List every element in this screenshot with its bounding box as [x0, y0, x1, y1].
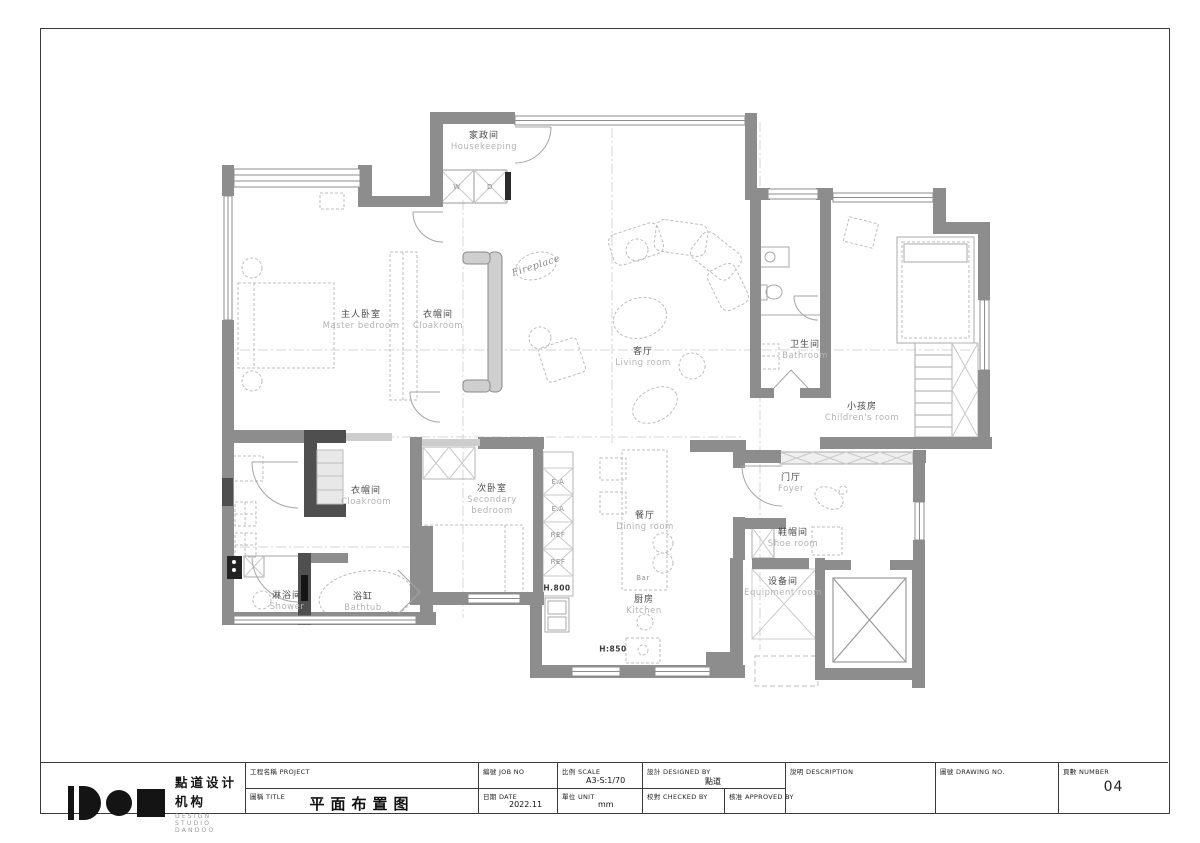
room-label-master-bedroom: 主人卧室 Master bedroom: [323, 310, 400, 332]
drawing-no-cell: 圖號 DRAWING NO.: [935, 763, 1058, 813]
walls-dark: [222, 172, 511, 625]
number-cell: 頁數 NUMBER 04: [1058, 763, 1168, 813]
studio-logo: 點道设计机构 DESIGN STUDIO DANDOO: [68, 772, 245, 834]
unit-row: 單位 UNIT mm: [558, 788, 642, 814]
ref-annotation-1: REF: [551, 531, 566, 539]
ea-annotation-1: E.A: [552, 478, 565, 486]
room-label-living-room: 客厅 Living room: [615, 347, 670, 369]
island-height-annotation: H:850: [599, 645, 626, 654]
drawing-no-label: 圖號 DRAWING NO.: [940, 766, 1005, 776]
room-label-secondary-bedroom: 次卧室 Secondary bedroom: [455, 484, 529, 517]
scale-label: 比例 SCALE: [562, 766, 600, 776]
room-label-shower: 淋浴间 Shower: [270, 591, 305, 613]
title-row: 圖稱 TITLE 平面布置图: [246, 788, 478, 814]
unit-value: mm: [598, 800, 614, 809]
bar-annotation: Bar: [636, 574, 649, 582]
drawing-title: 平面布置图: [246, 793, 478, 814]
studio-name-en: DESIGN STUDIO DANDOO: [175, 813, 245, 834]
logo-text: 點道设计机构 DESIGN STUDIO DANDOO: [175, 772, 245, 834]
windows: [224, 116, 989, 676]
room-label-childrens-room: 小孩房 Children's room: [825, 402, 899, 424]
design-check-cell: 設計 DESIGNED BY 點道 校對 CHECKED BY 核准 APPRO…: [642, 763, 785, 813]
ref-annotation-2: REF: [551, 558, 566, 566]
job-no-label: 編號 JOB NO: [483, 766, 524, 776]
logo-d-shape: [79, 786, 101, 820]
elevator-shaft: [833, 578, 906, 662]
studio-name-cn: 點道设计机构: [175, 772, 245, 810]
logo-dot-shape: [106, 790, 132, 816]
title-block: 點道设计机构 DESIGN STUDIO DANDOO 工程名稱 PROJECT…: [40, 762, 1168, 813]
counter-height-annotation: H.800: [543, 584, 570, 593]
room-label-housekeeping: 家政间 Housekeeping: [451, 131, 517, 153]
room-label-foyer: 门厅 Foyer: [778, 473, 804, 495]
drawing-sheet: 家政间 Housekeeping 主人卧室 Master bedroom 衣帽间…: [0, 0, 1200, 843]
room-label-kitchen: 厨房 Kitchen: [626, 595, 661, 617]
designed-by-label: 設計 DESIGNED BY: [647, 766, 711, 776]
scale-value: A3-S:1/70: [586, 776, 625, 785]
logo-square-shape: [137, 789, 165, 817]
description-cell: 說明 DESCRIPTION: [785, 763, 935, 813]
room-label-cloakroom-master: 衣帽间 Cloakroom: [413, 310, 463, 332]
sheet-number-value: 04: [1059, 779, 1168, 795]
logo-mark-icon: [68, 786, 165, 820]
description-label: 說明 DESCRIPTION: [790, 766, 853, 776]
room-label-equipment-room: 设备间 Equipment room: [744, 577, 822, 599]
jobno-date-cell: 編號 JOB NO 日期 DATE 2022.11: [478, 763, 557, 813]
room-label-bathtub: 浴缸 Bathtub: [344, 592, 381, 614]
dryer-annotation: D: [487, 183, 493, 191]
approved-by-cell: 核准 APPROVED BY: [724, 789, 786, 814]
room-label-cloakroom-second: 衣帽间 Cloakroom: [341, 486, 391, 508]
number-label: 頁數 NUMBER: [1063, 766, 1109, 776]
logo-bar-shape: [68, 786, 74, 820]
ea-annotation-2: E.A: [552, 505, 565, 513]
room-label-bathroom: 卫生间 Bathroom: [782, 340, 828, 362]
room-label-dining-room: 餐厅 Dining room: [616, 511, 674, 533]
scale-unit-cell: 比例 SCALE A3-S:1/70 單位 UNIT mm: [557, 763, 642, 813]
unit-label: 單位 UNIT: [562, 791, 595, 801]
partition-shelves: [317, 252, 502, 504]
checked-by-label: 校對 CHECKED BY: [647, 791, 708, 801]
checked-by-cell: 校對 CHECKED BY: [643, 789, 724, 814]
date-row: 日期 DATE 2022.11: [479, 788, 557, 814]
date-value: 2022.11: [509, 800, 542, 809]
floor-plan: [0, 0, 1200, 843]
washer-annotation: W: [453, 183, 460, 191]
room-label-shoe-room: 鞋帽间 Shoe room: [768, 528, 818, 550]
logo-cell: 點道设计机构 DESIGN STUDIO DANDOO: [40, 763, 245, 813]
project-title-cell: 工程名稱 PROJECT 圖稱 TITLE 平面布置图: [245, 763, 478, 813]
project-label: 工程名稱 PROJECT: [250, 766, 310, 776]
check-approve-row: 校對 CHECKED BY 核准 APPROVED BY: [643, 788, 785, 814]
designed-by-value: 點道: [705, 776, 721, 787]
